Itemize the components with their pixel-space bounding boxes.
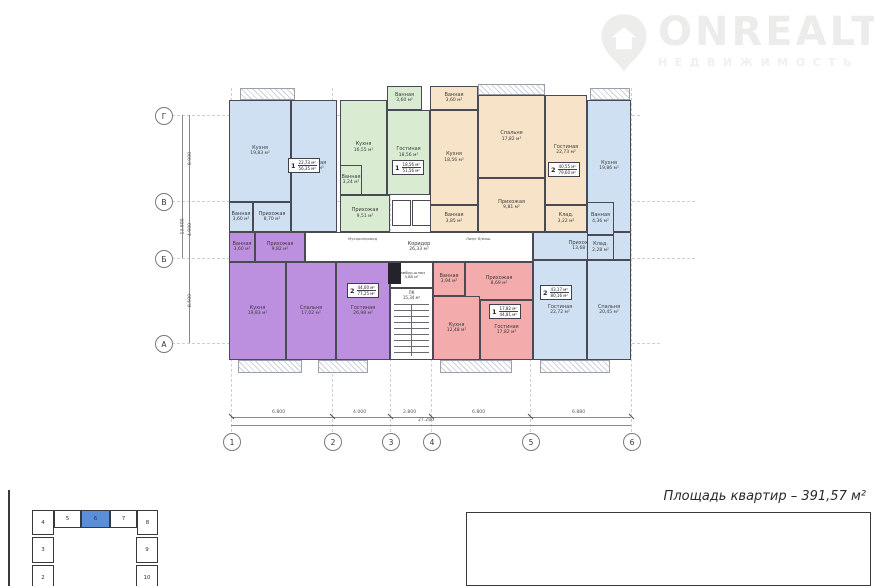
dim-left-2: 4.900 <box>188 223 193 236</box>
axis-row-a: А <box>155 335 173 353</box>
room-a2-living: Гостиная18,56 м² <box>387 110 430 195</box>
note-trash-chute: Мусоропровод <box>348 236 377 241</box>
dim-bottom-5: 6.880 <box>572 410 585 415</box>
dim-bottom-total: 27.280 <box>418 418 434 423</box>
title-block <box>466 512 871 586</box>
keyplan-cell-4: 4 <box>32 510 54 535</box>
keyplan-cell-7: 7 <box>110 510 137 528</box>
room-a2-hall: Прихожая9,51 м² <box>340 195 390 232</box>
room-a6-kitchen: Кухня12,48 м² <box>433 296 480 360</box>
room-a5-bath: Ванная3,60 м² <box>229 232 255 262</box>
watermark-subtitle: НЕДВИЖИМОСТЬ <box>658 56 874 69</box>
elevator-left <box>392 200 411 226</box>
total-area-label: Площадь квартир – 391,57 м² <box>556 489 866 504</box>
apartment-tag-a5: 2 44,00 м²77,25 м² <box>347 283 379 298</box>
room-a6-hall: Прихожая8,69 м² <box>465 262 533 300</box>
room-a4-storage: Клад.2,28 м² <box>587 235 614 260</box>
apartment-tag-a3: 2 40,55 м²79,60 м² <box>548 162 580 177</box>
room-a2-bath: Ванная3,24 м² <box>340 165 362 195</box>
dim-bottom-4: 6.800 <box>472 410 485 415</box>
balcony <box>440 360 512 373</box>
room-a3-bath-top: Ванная3,60 м² <box>430 86 478 110</box>
balcony <box>540 360 610 373</box>
apartment-tag-a4: 2 43,17 м²80,16 м² <box>540 285 572 300</box>
dim-left-total: 13.800 <box>181 218 186 234</box>
axis-col-5: 5 <box>522 433 540 451</box>
room-a3-bath: Ванная3,85 м² <box>430 205 478 232</box>
axis-col-4: 4 <box>423 433 441 451</box>
room-a5-living: Гостиная26,98 м² <box>336 262 390 360</box>
watermark-brand: ONREALT <box>658 12 874 52</box>
onrealt-watermark: ONREALT НЕДВИЖИМОСТЬ <box>598 12 874 78</box>
dim-left-3: 8.500 <box>188 294 193 307</box>
axis-col-6: 6 <box>623 433 641 451</box>
dim-bottom-2: 4.000 <box>353 410 366 415</box>
stair-divider <box>411 304 412 356</box>
dim-line-left-outer <box>182 115 183 258</box>
dim-bottom-3: 2.800 <box>403 410 416 415</box>
dim-line-bottom-2 <box>231 425 631 426</box>
axis-col-1: 1 <box>223 433 241 451</box>
trash-chute-shaft <box>388 263 401 284</box>
axis-row-b: Б <box>155 250 173 268</box>
grid-line-col <box>631 88 632 432</box>
balcony <box>240 88 295 100</box>
room-a4-hall: Прихожая13,68 м² <box>533 232 631 260</box>
apartment-tag-a6: 1 17,82 м²44,81 м² <box>489 304 521 319</box>
room-a1-hall: Прихожая8,70 м² <box>253 202 291 232</box>
floor-plan-sheet: ONREALT НЕДВИЖИМОСТЬ Кухня19,83 м² Гости… <box>0 0 874 586</box>
keyplan-cell-8: 8 <box>137 510 158 535</box>
axis-row-g: Г <box>155 107 173 125</box>
room-a1-bath: Ванная3,60 м² <box>229 202 253 232</box>
keyplan-cell-6-active: 6 <box>81 510 110 528</box>
axis-col-2: 2 <box>324 433 342 451</box>
axis-row-v: В <box>155 193 173 211</box>
room-a3-living: Гостиная22,73 м² <box>545 95 587 205</box>
keyplan-cell-9: 9 <box>136 537 158 563</box>
dim-left-1: 8.900 <box>188 152 193 165</box>
apartment-tag-a1: 1 22,73 м²56,35 м² <box>288 158 320 173</box>
room-a3-hall: Прихожая9,81 м² <box>478 178 545 232</box>
room-a1-kitchen: Кухня19,83 м² <box>229 100 291 202</box>
room-a5-kitchen: Кухня19,83 м² <box>229 262 286 360</box>
keyplan-cell-3: 3 <box>32 537 54 563</box>
room-a3-storage: Клад.3,22 м² <box>545 205 587 232</box>
room-a2-bath-top: Ванная3,60 м² <box>387 86 422 110</box>
keyplan-cell-5: 5 <box>54 510 81 528</box>
apartment-tag-a2: 1 18,56 м²51,56 м² <box>392 160 424 175</box>
balcony <box>590 88 630 100</box>
room-a3-kitchen: Кухня18,56 м² <box>430 110 478 205</box>
onrealt-pin-icon <box>598 12 650 78</box>
keyplan-cell-10: 10 <box>136 565 158 586</box>
balcony <box>318 360 368 373</box>
room-a4-bath: Ванная4,36 м² <box>587 202 614 235</box>
room-a5-hall: Прихожая9,82 м² <box>255 232 305 262</box>
note-elevator: Лифт б/маш. <box>466 236 491 241</box>
dim-bottom-1: 6.800 <box>272 410 285 415</box>
room-corridor: Коридор26,33 м² <box>305 232 533 262</box>
axis-col-3: 3 <box>382 433 400 451</box>
room-a3-bedroom: Спальня17,82 м² <box>478 95 545 178</box>
balcony <box>238 360 302 373</box>
sheet-frame-left <box>8 490 10 586</box>
room-a4-living: Гостиная22,72 м² <box>533 260 587 360</box>
room-a5-bedroom: Спальня17,02 м² <box>286 262 336 360</box>
room-a6-bath: Ванная3,94 м² <box>433 262 465 296</box>
keyplan-cell-2: 2 <box>32 565 54 586</box>
balcony <box>478 84 545 95</box>
elevator-right <box>412 200 431 226</box>
room-a4-bedroom: Спальня20,45 м² <box>587 260 631 360</box>
